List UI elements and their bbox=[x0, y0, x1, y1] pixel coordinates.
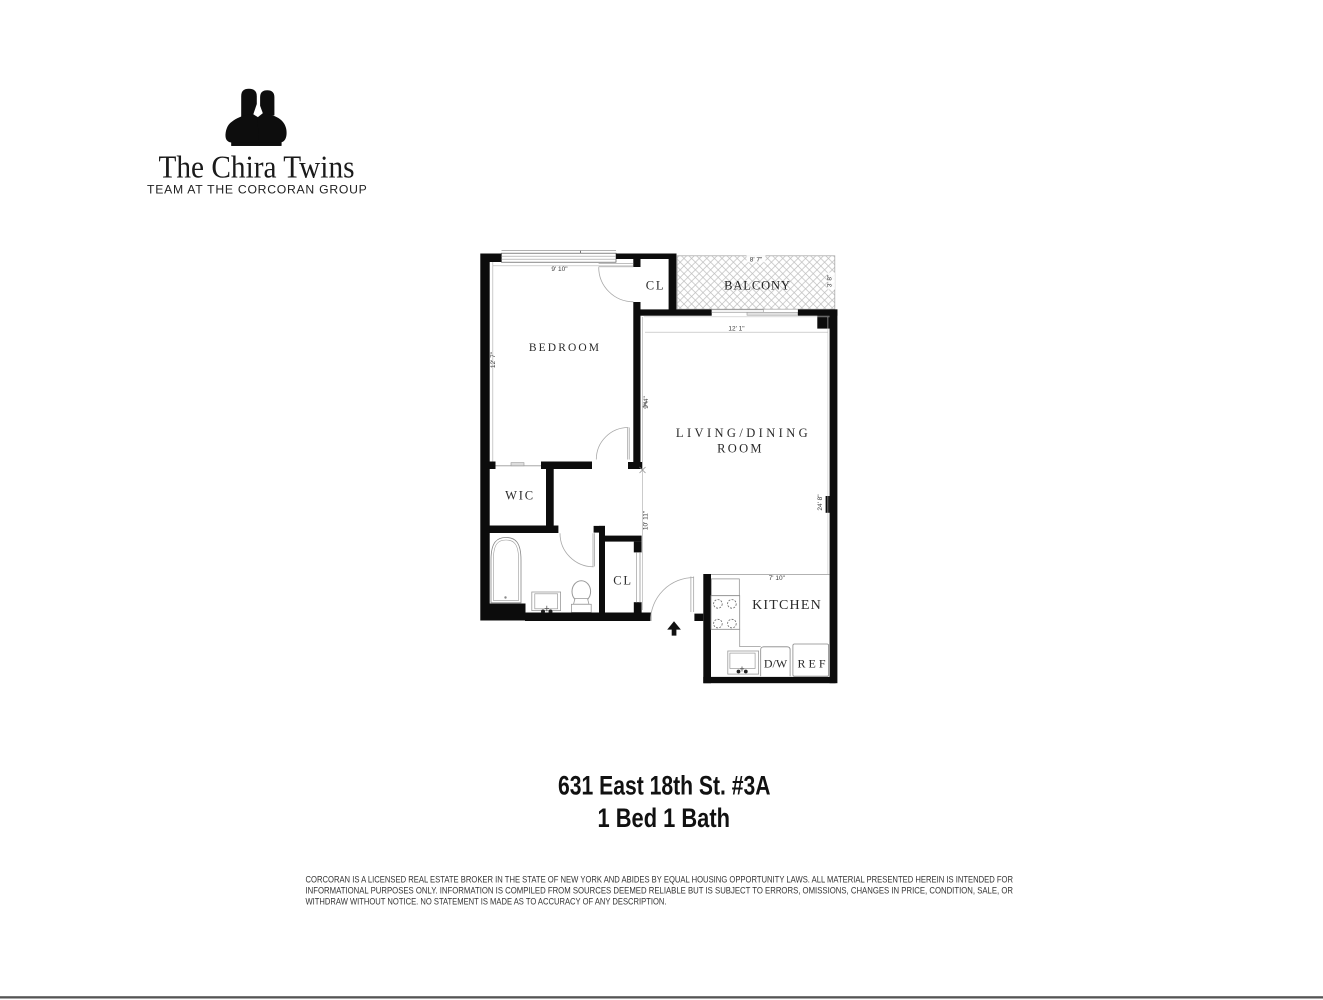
svg-text:3' 8": 3' 8" bbox=[827, 274, 834, 287]
svg-text:D/W: D/W bbox=[764, 657, 788, 671]
svg-text:REF: REF bbox=[797, 657, 828, 671]
svg-text:1 Bed 1 Bath: 1 Bed 1 Bath bbox=[598, 803, 731, 833]
svg-text:10' 11": 10' 11" bbox=[643, 510, 650, 530]
svg-text:LIVING/DINING: LIVING/DINING bbox=[676, 426, 811, 440]
svg-text:TEAM AT THE CORCORAN GROUP: TEAM AT THE CORCORAN GROUP bbox=[147, 183, 368, 197]
svg-text:CL: CL bbox=[613, 574, 633, 588]
svg-text:631 East 18th St. #3A: 631 East 18th St. #3A bbox=[558, 771, 771, 801]
svg-text:INFORMATIONAL PURPOSES ONLY. I: INFORMATIONAL PURPOSES ONLY. INFORMATION… bbox=[306, 885, 1014, 895]
svg-text:CORCORAN IS A LICENSED REAL ES: CORCORAN IS A LICENSED REAL ESTATE BROKE… bbox=[306, 874, 1014, 884]
svg-text:9' 10": 9' 10" bbox=[551, 266, 568, 273]
svg-text:8' 7": 8' 7" bbox=[750, 257, 763, 264]
svg-text:KITCHEN: KITCHEN bbox=[752, 598, 822, 613]
svg-text:7' 10": 7' 10" bbox=[769, 575, 786, 582]
svg-text:ROOM: ROOM bbox=[717, 442, 764, 456]
svg-text:CL: CL bbox=[646, 279, 666, 293]
svg-text:WIC: WIC bbox=[505, 489, 535, 503]
svg-text:BALCONY: BALCONY bbox=[724, 279, 791, 293]
svg-text:12' 1": 12' 1" bbox=[728, 326, 745, 333]
svg-text:WITHDRAW WITHOUT NOTICE. NO ST: WITHDRAW WITHOUT NOTICE. NO STATEMENT IS… bbox=[306, 897, 667, 907]
svg-text:BEDROOM: BEDROOM bbox=[529, 342, 601, 354]
svg-text:12' 7": 12' 7" bbox=[490, 351, 497, 368]
svg-text:The Chira Twins: The Chira Twins bbox=[159, 149, 355, 185]
svg-text:24' 8": 24' 8" bbox=[817, 494, 824, 511]
